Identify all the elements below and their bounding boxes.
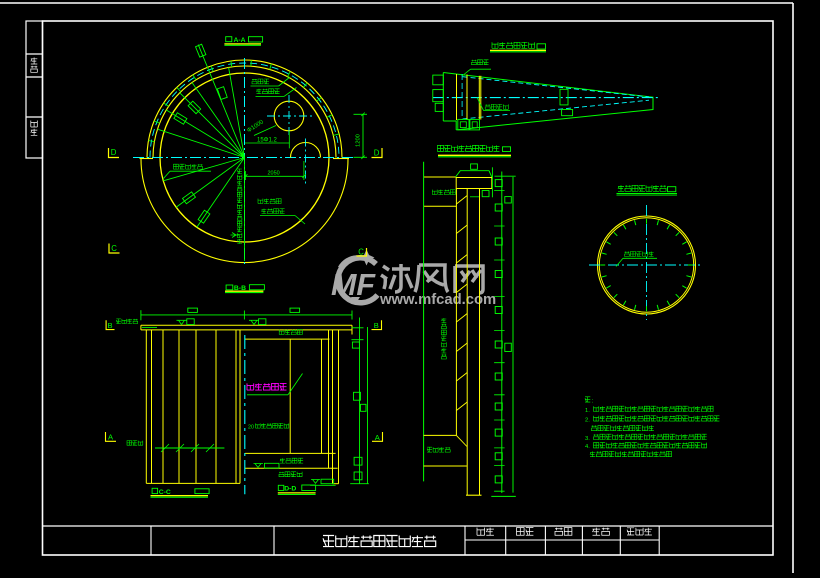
svg-text:3.: 3. (585, 436, 590, 442)
svg-text:A-A: A-A (234, 37, 246, 44)
svg-text:B: B (374, 321, 379, 330)
svg-text:C: C (358, 247, 364, 256)
svg-text:1200: 1200 (356, 134, 362, 147)
svg-text:C: C (111, 244, 117, 253)
svg-text:C-C: C-C (159, 489, 171, 496)
svg-text:4.: 4. (585, 444, 590, 450)
svg-text:2.: 2. (585, 417, 590, 423)
svg-text:MF: MF (331, 268, 376, 302)
svg-text:D-D: D-D (284, 486, 296, 493)
svg-text:2050: 2050 (268, 171, 280, 177)
svg-text:www.mfcad.com: www.mfcad.com (379, 292, 496, 308)
svg-text:B: B (108, 321, 113, 330)
svg-text:1.: 1. (585, 408, 590, 414)
svg-text:D: D (374, 149, 380, 158)
svg-text:D: D (111, 148, 117, 157)
svg-text:20: 20 (248, 424, 254, 430)
